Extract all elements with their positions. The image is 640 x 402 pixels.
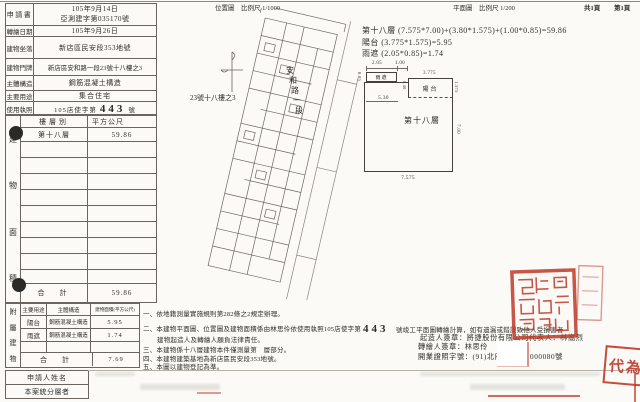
bleed-smudge: [95, 372, 135, 376]
note-line-6: 五、本圖以建物登記為準。: [143, 364, 223, 371]
table-row: 主要用途 集合住宅: [6, 91, 156, 102]
table-row: 建物坐落 新店區民安段353地號: [6, 37, 156, 59]
road-name-char: 段: [295, 107, 303, 116]
canopy-label: 雨遮: [375, 74, 387, 81]
table-row: 主要用途 主體構造 建物面積(平方公尺): [21, 304, 139, 316]
annex-area: 1.74: [91, 329, 139, 341]
building-use: 集合住宅: [34, 91, 156, 101]
application-date: 105年9月14日: [72, 5, 119, 14]
annex-section-label: 附 屬 建 物: [6, 304, 21, 367]
table-row: 樓層別 平方公尺: [21, 116, 156, 128]
note-line-2: 二、本建物平面圖、位置圖及建物面積係由林思伶依使用執照105店使字第: [143, 326, 361, 333]
partial-seal-stamp: [576, 265, 604, 322]
empty-row: [21, 238, 156, 254]
floor-area-value: 59.86: [88, 128, 156, 141]
section-char: 建: [10, 338, 17, 348]
transfer-date: 105年9月26日: [34, 26, 156, 36]
table-row: 陽台 鋼筋混凝土構造 5.95: [21, 316, 139, 329]
compass-north-icon: [219, 50, 245, 96]
section-char: 附: [10, 307, 17, 317]
building-address: 新店區安和路一段23號十八樓之3: [34, 59, 156, 75]
section-char: 物: [10, 354, 17, 364]
info-label: 申請書: [6, 4, 34, 25]
floor-plan-title: 平面圖 比例尺 1/200: [453, 5, 515, 12]
red-underline-mark: [488, 395, 580, 397]
info-label: 建物坐落: [6, 37, 34, 58]
punch-hole-dot: [9, 126, 23, 140]
table-row: 第十八層 59.86: [21, 128, 156, 142]
dim-2-05: 2.05: [372, 61, 382, 66]
info-label: 主體構造: [6, 76, 34, 90]
table-row: 建物門牌 新店區安和路一段23號十八樓之3: [6, 59, 156, 76]
road-name-char: 一: [293, 97, 301, 106]
dim-7-00: 7.00: [455, 124, 460, 134]
empty-row: [21, 254, 156, 270]
area-formula-main: 第十八層 (7.575*7.00)+(3.80*1.575)+(1.00*0.8…: [362, 27, 567, 36]
dim-tick: [397, 66, 398, 71]
info-label: 轉繪日期: [6, 26, 34, 36]
punch-hole-dot: [12, 278, 26, 292]
bleed-smudge: [420, 372, 600, 376]
annex-area: 5.95: [91, 316, 139, 328]
dim-tick: [366, 66, 367, 71]
table-row: 申請書 105年9月14日 亞測建字第035170號: [6, 4, 156, 26]
redaction-patch: [497, 342, 529, 367]
dim-tick: [407, 66, 408, 71]
info-label: 主要用途: [6, 91, 34, 101]
road-name-char: 路: [291, 87, 299, 96]
map-building-label: 23號十八樓之3: [189, 95, 237, 103]
annex-building-table: 附 屬 建 物 主要用途 主體構造 建物面積(平方公尺) 陽台 鋼筋混凝土構造 …: [5, 303, 140, 368]
license-number-suffix: 000080號: [530, 354, 563, 362]
area-formula-balcony: 陽台 (3.775*1.575)=5.95: [362, 39, 452, 48]
floor-table-section-label: 建 物 面 積: [6, 116, 21, 302]
page-number-label: 第1頁: [614, 5, 630, 12]
table-row: 主體構造 鋼筋混凝土構造: [6, 76, 156, 91]
note-line-1: 一、依地籍測量實施規則第282條之2規定辦理。: [143, 311, 284, 318]
application-number: 亞測建字第035170號: [61, 15, 130, 24]
col-header-use: 主要用途: [21, 304, 47, 315]
land-lot: 新店區民安段353地號: [34, 37, 156, 58]
total-row: 合 計 7.69: [21, 353, 139, 366]
dim-line: [366, 68, 408, 69]
road-name-char: 安: [286, 67, 294, 76]
col-header-area: 建物面積(平方公尺): [91, 304, 139, 315]
top-border-line: [0, 1, 640, 2]
empty-row: [21, 158, 156, 174]
table-row: 雨遮 鋼筋混凝土構造 1.74: [21, 329, 139, 342]
red-mark: [197, 392, 221, 394]
empty-row: [21, 222, 156, 238]
annex-structure: 鋼筋混凝土構造: [47, 329, 91, 341]
total-area-value: 59.86: [88, 284, 156, 302]
section-char: 屬: [10, 323, 17, 333]
section-char: 面: [9, 227, 17, 238]
red-edge-line: [634, 372, 636, 402]
dim-1-00: 1.00: [395, 61, 405, 66]
floor-name: 第十八層: [21, 128, 88, 141]
dim-5-30: 5.30: [378, 95, 389, 101]
section-char: 物: [9, 180, 17, 191]
info-label: 建物門牌: [6, 59, 34, 75]
empty-row: [21, 174, 156, 190]
page-count-label: 共1頁: [584, 5, 600, 12]
table-row: 轉繪日期 105年9月26日: [6, 26, 156, 37]
empty-row: [21, 206, 156, 222]
applicant-label: 申請人姓名: [6, 371, 88, 384]
note-line-3: 建物起造人及轉繪人願負法律責任。: [157, 337, 264, 344]
main-floor-label: 第十八層: [392, 117, 452, 126]
structure-type: 鋼筋混凝土構造: [34, 76, 156, 90]
floor-area-table: 建 物 面 積 樓層別 平方公尺 第十八層 59.86 合 計: [5, 115, 157, 303]
total-label: 合 計: [21, 284, 88, 302]
empty-row: [21, 142, 156, 158]
dim-0-40: 0.40: [402, 81, 407, 90]
company-seal-stamp: [510, 268, 578, 340]
annex-use: 陽台: [21, 316, 47, 328]
dim-7-575: 7.575: [398, 175, 418, 181]
license-prefix: 105店使字第: [54, 104, 97, 114]
col-header-floor: 樓層別: [21, 116, 88, 127]
applicant-box: 申請人姓名 本案統分層者: [5, 370, 89, 399]
dim-0-85: 0.85: [357, 72, 362, 81]
annex-total-value: 7.69: [93, 353, 139, 366]
plan-canopy-box: 雨遮: [366, 72, 397, 82]
transcriber-signature-line: 轉繪人簽章：林思伶: [418, 344, 488, 352]
annex-use: 雨遮: [21, 329, 47, 341]
col-header-structure: 主體構造: [47, 304, 91, 315]
note-line-5: 四、本建物建築基地為新店區民安段353地號。: [143, 356, 281, 363]
annex-structure: 鋼筋混凝土構造: [47, 316, 91, 328]
building-info-table: 申請書 105年9月14日 亞測建字第035170號 轉繪日期 105年9月26…: [5, 3, 157, 115]
area-formula-canopy: 雨遮 (2.05*0.85)=1.74: [362, 50, 443, 59]
bleed-smudge: [470, 384, 565, 390]
bleed-smudge: [140, 384, 220, 390]
road-name-char: 和: [289, 77, 297, 86]
empty-row: [21, 270, 156, 284]
total-label: 合 計: [21, 353, 93, 366]
empty-row: [21, 190, 156, 206]
col-header-area: 平方公尺: [88, 116, 156, 127]
table-row: 使用執照 105店使字第 443 號: [6, 102, 156, 116]
license-suffix: 號: [128, 104, 136, 114]
info-label: 使用執照: [6, 102, 34, 116]
balcony-label: 陽台: [422, 84, 438, 93]
dim-line: [366, 101, 398, 102]
total-row: 合 計 59.86: [21, 284, 156, 302]
note-license-number: 443: [363, 323, 389, 335]
staff-label: 本案統分層者: [6, 385, 88, 398]
dim-1-575-right: 1.575: [454, 81, 459, 93]
plan-balcony-box: 陽台: [408, 78, 453, 98]
license-number: 443: [100, 103, 126, 115]
empty-row: [21, 342, 139, 353]
note-line-4: 三、本建物係十八層建物本件僅測量第 層部分。: [143, 347, 290, 354]
license-number-prefix: 開業證照字號：(91)北府: [418, 354, 502, 362]
survey-document-page: 位置圖 比例尺 1/1000 平面圖 比例尺 1/200 共1頁 第1頁 申請書…: [0, 0, 640, 402]
dim-3-775: 3.775: [423, 71, 436, 76]
